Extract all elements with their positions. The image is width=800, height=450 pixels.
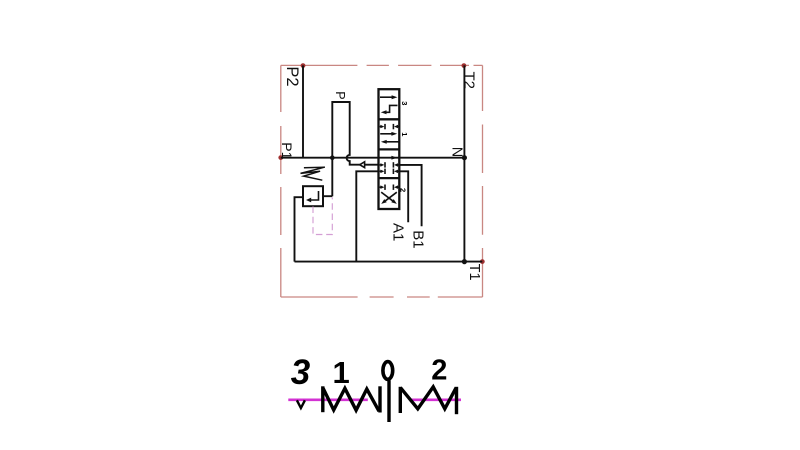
svg-text:A1: A1 [389, 223, 406, 241]
svg-text:3: 3 [400, 101, 409, 105]
svg-text:P2: P2 [283, 66, 301, 86]
svg-text:N: N [448, 147, 464, 157]
svg-text:T2: T2 [461, 72, 478, 90]
svg-text:2: 2 [399, 188, 408, 192]
svg-text:3: 3 [291, 353, 311, 392]
svg-text:1: 1 [400, 132, 409, 136]
svg-text:T1: T1 [466, 264, 482, 281]
svg-text:1: 1 [333, 355, 350, 390]
svg-text:P1: P1 [279, 142, 295, 159]
svg-text:2: 2 [431, 355, 447, 387]
svg-text:B1: B1 [409, 230, 426, 248]
svg-text:P: P [333, 91, 347, 99]
